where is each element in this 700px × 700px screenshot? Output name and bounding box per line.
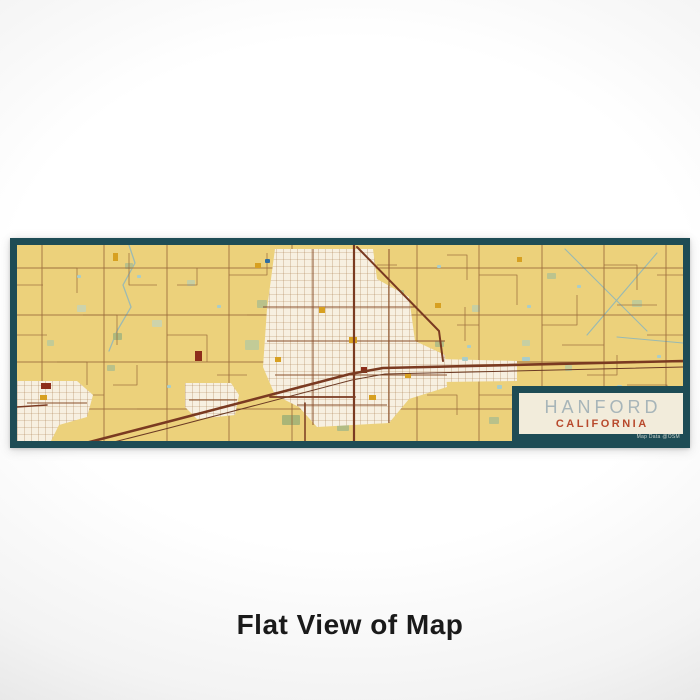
map-poster[interactable]: HANFORD CALIFORNIA Map Data @OSM <box>10 238 690 448</box>
product-photo-background: HANFORD CALIFORNIA Map Data @OSM Flat Vi… <box>0 0 700 700</box>
title-card: HANFORD CALIFORNIA Map Data @OSM <box>512 386 683 441</box>
state-name: CALIFORNIA <box>553 418 648 430</box>
city-name: HANFORD <box>541 398 662 416</box>
map-attribution: Map Data @OSM <box>637 434 680 441</box>
title-card-panel: HANFORD CALIFORNIA <box>519 393 683 434</box>
view-caption: Flat View of Map <box>0 604 700 646</box>
